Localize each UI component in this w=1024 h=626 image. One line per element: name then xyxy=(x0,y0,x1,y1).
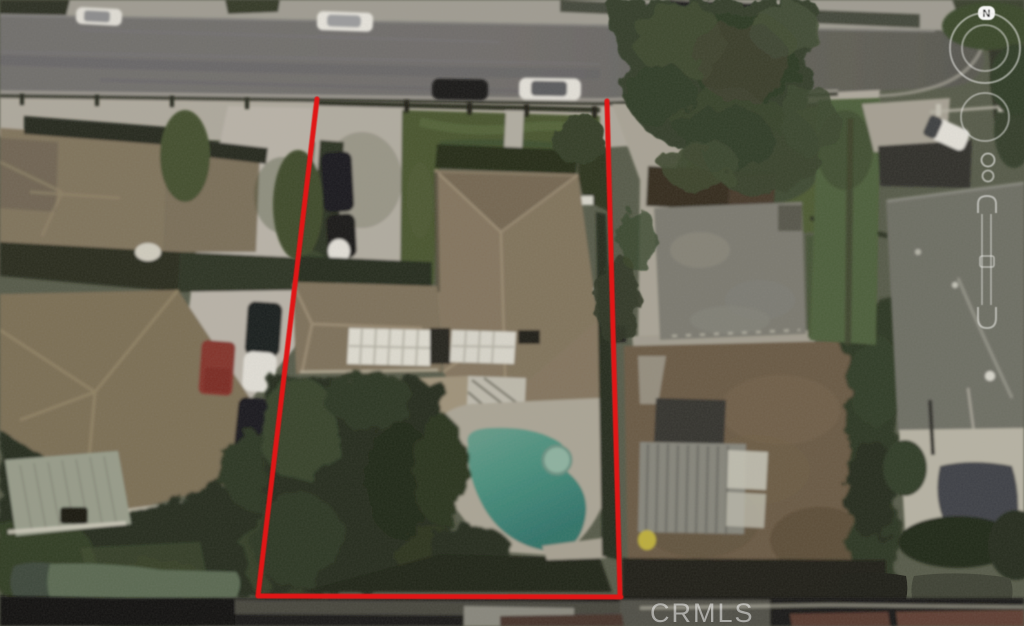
svg-text:CRMLS: CRMLS xyxy=(650,598,755,626)
